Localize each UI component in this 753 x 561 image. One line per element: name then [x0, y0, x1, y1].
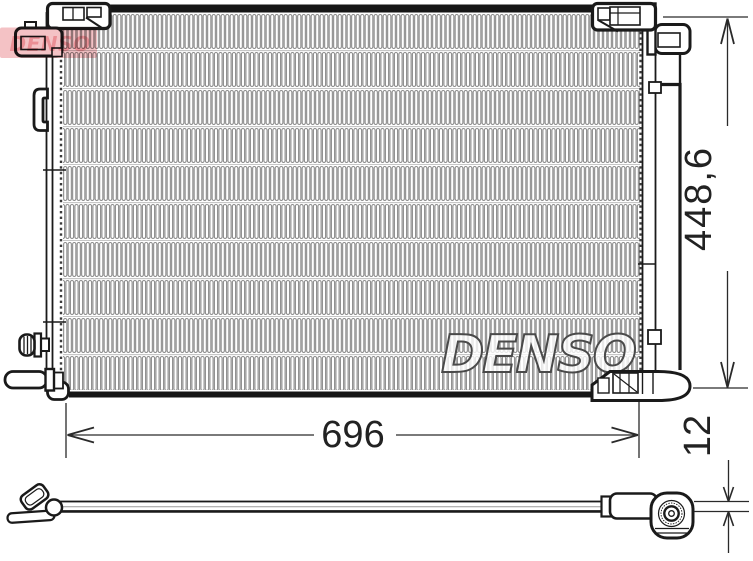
height-dimension-label: 448,6 — [678, 146, 720, 251]
height-dimension: 448,6 — [663, 17, 748, 388]
left-side-plate — [47, 13, 53, 391]
bottom-header-plate — [69, 392, 597, 398]
left-mounting-clip — [34, 89, 48, 131]
right-header-tank — [638, 14, 680, 391]
condenser-front-view: DENSO — [0, 4, 690, 401]
pipe-left-fitting — [7, 482, 62, 523]
width-dimension: 696 — [66, 402, 639, 458]
right-connector-block — [655, 25, 690, 54]
red-watermark-text: DENSO — [10, 32, 91, 56]
lower-left-pipe-fitting — [5, 369, 63, 391]
bottom-right-foot-bracket — [592, 372, 690, 401]
width-dimension-label: 696 — [321, 414, 384, 456]
threaded-fitting — [20, 334, 50, 357]
condenser-technical-drawing: DENSO — [0, 0, 753, 561]
top-left-mounting-bracket — [48, 4, 111, 29]
pipe-eyelet-fitting — [602, 493, 694, 538]
receiver-pipe — [7, 482, 693, 538]
thickness-dimension-label: 12 — [677, 415, 719, 457]
denso-red-watermark: DENSO — [0, 28, 97, 59]
top-header-plate — [104, 5, 594, 13]
